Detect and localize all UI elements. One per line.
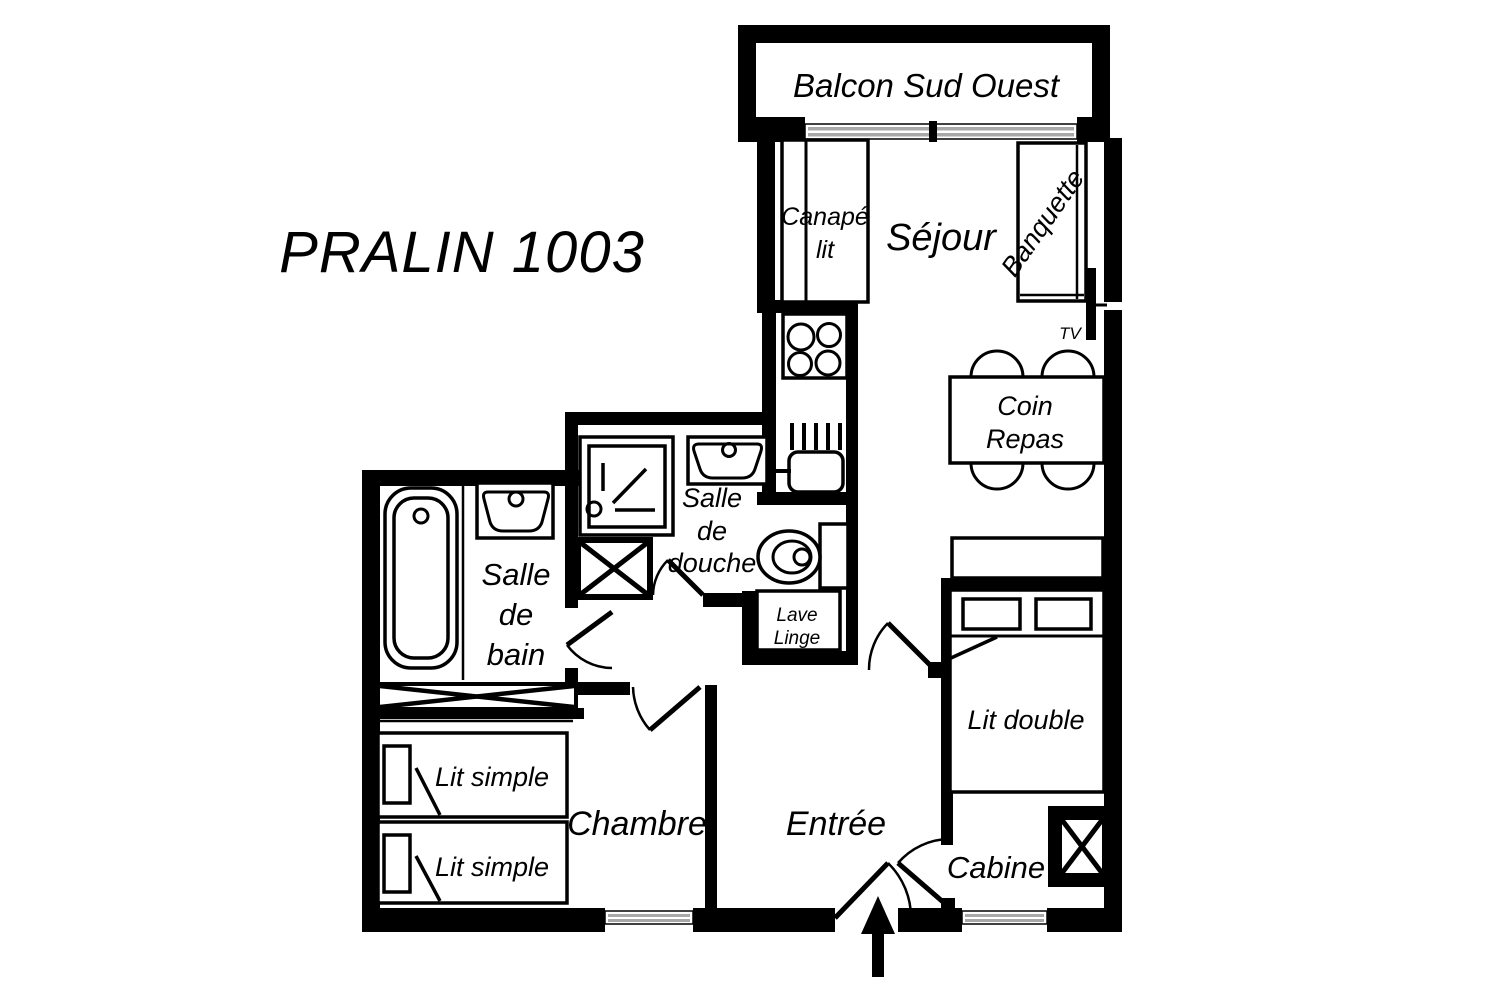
bedroom-window-frame (605, 911, 693, 924)
bedroom-window-glass-top (608, 914, 690, 917)
plan-title: PRALIN 1003 (279, 220, 645, 285)
wall-entrance-top (742, 651, 848, 665)
dining-label-line2: Repas (986, 424, 1064, 454)
balcony-window-glass-bottom (808, 133, 1074, 137)
wall-balcony-left (738, 25, 756, 142)
toilet-cistern (820, 524, 848, 588)
floor-plan: PRALIN 1003 Balcon Sud Ouest Séjour Cana… (0, 0, 1500, 1000)
bathroom-label-line2: de (499, 597, 533, 632)
wall-bottom-2 (693, 908, 835, 932)
livingroom-label: Séjour (886, 217, 997, 259)
tv-unit (1086, 268, 1096, 340)
showerroom-label-line2: de (697, 516, 727, 546)
cabin-window-glass-top (965, 914, 1044, 917)
bedroom-window-glass-bottom (608, 919, 690, 922)
wall-junction-stub (576, 682, 630, 695)
cabin-window-frame (962, 911, 1047, 924)
plan-background (0, 0, 1500, 1000)
cabin-window (962, 911, 1047, 924)
balcony-window-frame (805, 124, 1077, 139)
kitchen-sink (789, 452, 843, 492)
sideboard (952, 538, 1103, 578)
wall-kitchen-bottom (757, 492, 858, 505)
bathroom-label-line1: Salle (482, 557, 551, 592)
single-bed-1-label: Lit simple (435, 762, 549, 792)
bathroom-label-line3: bain (487, 637, 546, 672)
sofa-bed-label-line2: lit (816, 236, 835, 264)
entrance-label: Entrée (786, 805, 886, 843)
tv-label: TV (1059, 324, 1082, 343)
wall-showerroom-top (565, 412, 775, 425)
floor-plan-page: PRALIN 1003 Balcon Sud Ouest Séjour Cana… (0, 0, 1500, 1000)
washer-label-line2: Linge (774, 628, 821, 649)
washer-label-line1: Lave (776, 605, 817, 626)
shaft-cabin (1048, 806, 1122, 887)
balcony-label: Balcon Sud Ouest (793, 67, 1061, 104)
single-bed-2-label: Lit simple (435, 852, 549, 882)
double-bed-pillow-left (963, 599, 1020, 629)
showerroom-label-line3: douche (668, 548, 757, 578)
wall-bottom-4 (1047, 908, 1122, 932)
double-bed-pillow-right (1036, 599, 1091, 629)
sofa-bed-label-line1: Canapé (781, 203, 869, 231)
wall-bottom-1 (362, 908, 605, 932)
single-bed-2-pillow (384, 835, 410, 892)
wall-balcony-top (738, 25, 1110, 43)
shaft-showerroom (578, 540, 650, 597)
wall-bottom-3 (898, 908, 962, 932)
balcony-window-divider (929, 121, 937, 142)
balcony-window-glass-top (808, 127, 1074, 131)
wall-livingroom-left (757, 128, 775, 313)
double-bed-label: Lit double (967, 705, 1084, 735)
bedroom-window (605, 911, 693, 924)
cabin-window-glass-bottom (965, 919, 1044, 922)
showerroom-label-line1: Salle (682, 483, 742, 513)
dining-label-line1: Coin (997, 391, 1053, 421)
single-bed-1-pillow (384, 746, 410, 803)
bedroom-label: Chambre (567, 805, 707, 843)
wall-right-main (1104, 138, 1122, 808)
cabin-label: Cabine (947, 850, 1045, 885)
